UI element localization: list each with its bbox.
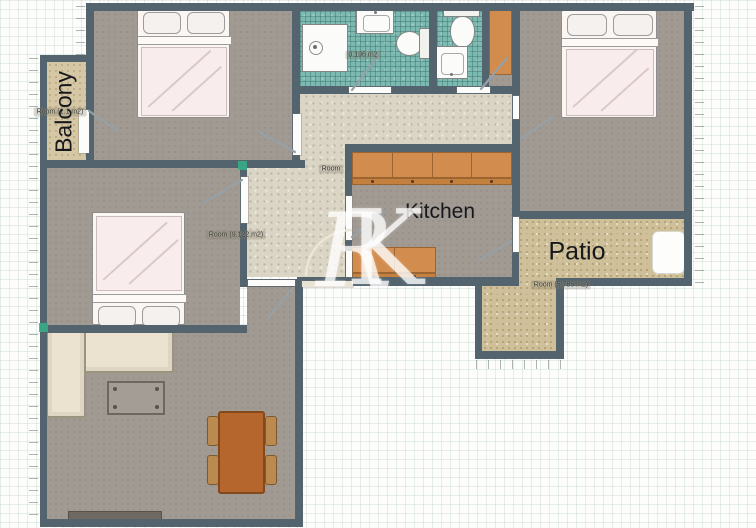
door-swing-line bbox=[352, 55, 379, 90]
area-label-patio: Room (5.785 m2) bbox=[531, 281, 591, 290]
area-label-bathroom-main: 0.196 m2 bbox=[345, 51, 380, 60]
door-swing-line bbox=[481, 58, 507, 89]
room-label-balcony: Balcony bbox=[51, 71, 78, 153]
door-swing-line bbox=[259, 132, 295, 152]
door-swing-line bbox=[267, 288, 293, 319]
area-label-hallway: Room bbox=[319, 165, 344, 174]
door-swing-line bbox=[521, 117, 552, 139]
room-label-patio: Patio bbox=[549, 238, 606, 267]
door-swing-line bbox=[89, 111, 118, 131]
door-swing-line bbox=[478, 241, 511, 261]
floor-plan: Room (1.1 m2) Balcony Kitchen Patio Room… bbox=[0, 0, 756, 528]
area-label-bedroom-left: Room (9.122 m2) bbox=[206, 231, 266, 240]
door-swing-line bbox=[205, 180, 242, 202]
watermark-monogram: K bbox=[346, 202, 424, 296]
